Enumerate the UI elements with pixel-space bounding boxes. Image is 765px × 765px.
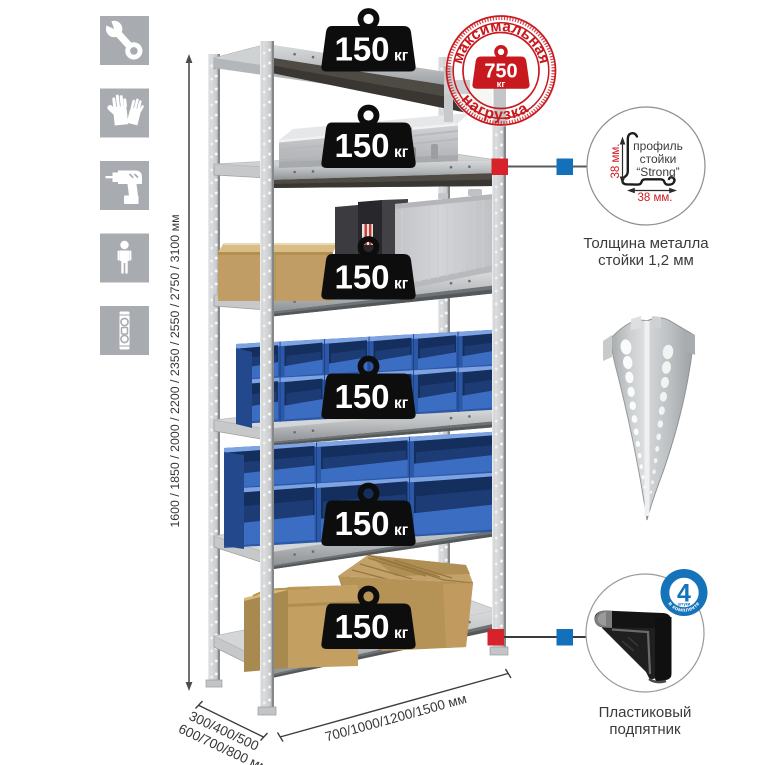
svg-text:38 мм.: 38 мм. <box>638 192 673 204</box>
svg-text:150: 150 <box>334 378 389 415</box>
svg-text:1600 / 1850 / 2000 / 2200 / 23: 1600 / 1850 / 2000 / 2200 / 2350 / 2550 … <box>168 214 182 527</box>
svg-text:кг: кг <box>497 79 506 90</box>
svg-text:кг: кг <box>394 625 409 642</box>
svg-text:кг: кг <box>394 48 409 65</box>
svg-text:стойки 1,2 мм: стойки 1,2 мм <box>598 252 694 269</box>
svg-text:кг: кг <box>394 522 409 539</box>
svg-text:150: 150 <box>334 127 389 164</box>
svg-text:кг: кг <box>394 395 409 412</box>
svg-text:профиль: профиль <box>633 139 683 153</box>
svg-text:Толщина металла: Толщина металла <box>583 235 709 252</box>
svg-text:150: 150 <box>334 31 389 68</box>
svg-text:стойки: стойки <box>640 152 677 166</box>
svg-text:150: 150 <box>334 505 389 542</box>
svg-text:“Strong”: “Strong” <box>636 165 679 179</box>
svg-text:кг: кг <box>394 276 409 293</box>
svg-text:подпятник: подпятник <box>609 721 681 738</box>
svg-text:150: 150 <box>334 259 389 296</box>
svg-text:кг: кг <box>394 144 409 161</box>
svg-text:38 мм.: 38 мм. <box>610 144 622 179</box>
svg-text:Пластиковый: Пластиковый <box>599 704 692 721</box>
svg-text:штуки: штуки <box>678 602 691 607</box>
svg-text:150: 150 <box>334 608 389 645</box>
